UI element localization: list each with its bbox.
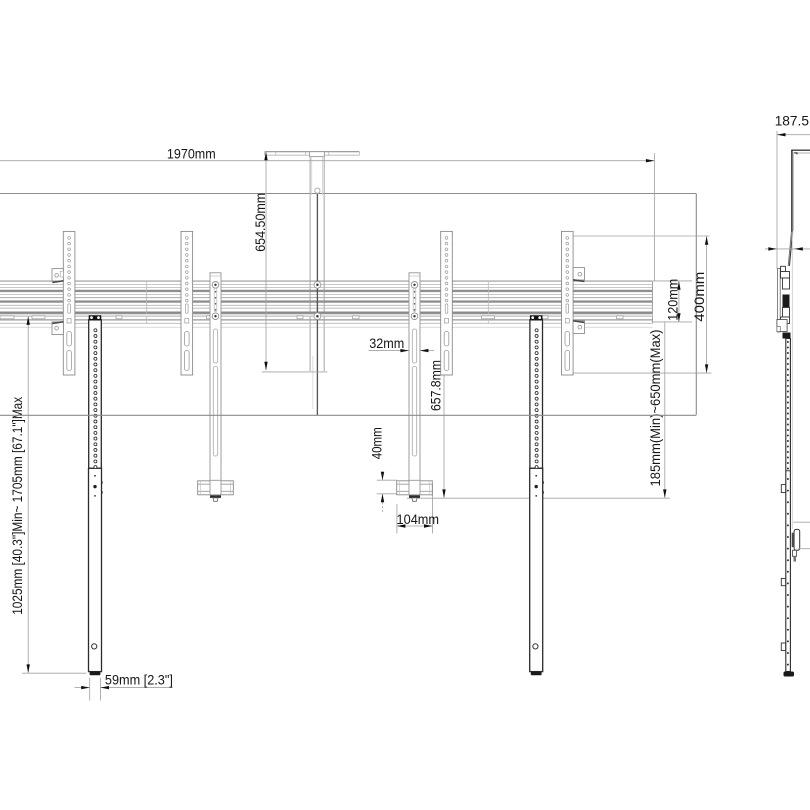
svg-text:40mm: 40mm: [369, 427, 385, 459]
svg-text:1025mm [40.3"]Min~ 1705mm [67.: 1025mm [40.3"]Min~ 1705mm [67.1"]Max: [9, 397, 25, 615]
svg-text:120mm: 120mm: [665, 279, 681, 321]
svg-text:104mm: 104mm: [397, 511, 440, 527]
svg-text:185mm(Min)~650mm(Max): 185mm(Min)~650mm(Max): [647, 330, 663, 487]
svg-text:400mm: 400mm: [691, 272, 707, 322]
svg-text:654.50mm: 654.50mm: [252, 193, 268, 252]
svg-text:187.5: 187.5: [775, 113, 809, 129]
svg-text:32mm: 32mm: [369, 335, 404, 351]
svg-text:59mm [2.3"]: 59mm [2.3"]: [105, 672, 173, 688]
svg-text:1970mm: 1970mm: [167, 145, 216, 161]
